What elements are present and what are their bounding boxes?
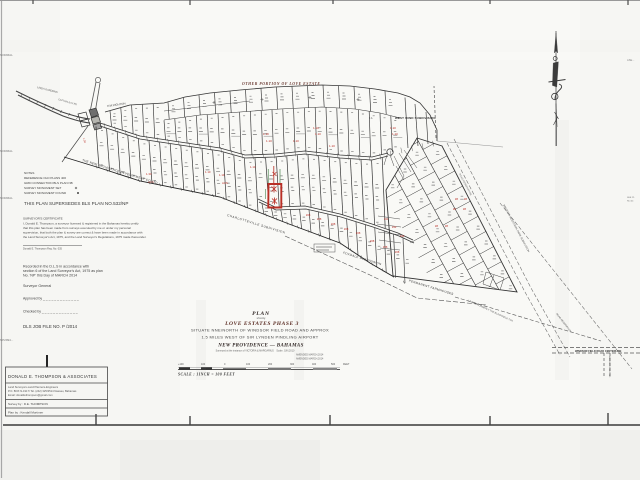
svg-text:Surveyed at the instance of VI: Surveyed at the instance of VICTORIA & M…	[216, 350, 295, 353]
svg-text:showing: showing	[257, 317, 266, 320]
svg-text:4 A: 4 A	[369, 117, 373, 120]
svg-text:1.10: 1.10	[266, 139, 272, 143]
svg-text:1.10: 1.10	[313, 126, 319, 130]
svg-text:OTHER PORTION OF LOVE ESTATE: OTHER PORTION OF LOVE ESTATE	[242, 82, 320, 86]
svg-text:LOVE ESTATES PHASE 3: LOVE ESTATES PHASE 3	[224, 321, 299, 327]
svg-text:1.10: 1.10	[205, 170, 211, 174]
svg-text:400: 400	[312, 363, 317, 366]
svg-text:200: 200	[268, 363, 273, 366]
svg-text:#43: #43	[400, 234, 405, 238]
svg-text:FEET: FEET	[343, 363, 350, 366]
svg-text:500: 500	[331, 363, 336, 366]
svg-text:1.10: 1.10	[263, 132, 269, 136]
svg-text:#28: #28	[306, 213, 311, 217]
svg-text:#41: #41	[384, 217, 389, 221]
svg-text:1.10: 1.10	[390, 126, 396, 130]
svg-text:1.10: 1.10	[293, 139, 299, 143]
svg-text:#28: #28	[356, 231, 361, 235]
svg-text:SCALE : 1INCH = 100 FEET: SCALE : 1INCH = 100 FEET	[178, 373, 235, 377]
svg-text:1.10: 1.10	[219, 173, 225, 177]
svg-text:1.30: 1.30	[146, 172, 152, 176]
svg-text:#28: #28	[395, 250, 400, 254]
svg-text:SITUATE NNE/NORTH OF WINDSOR F: SITUATE NNE/NORTH OF WINDSOR FIELD ROAD …	[191, 328, 329, 333]
svg-text:1.10: 1.10	[329, 144, 335, 148]
svg-text:1.10: 1.10	[315, 132, 321, 136]
svg-text:#28: #28	[370, 239, 375, 243]
svg-text:#28: #28	[344, 227, 349, 231]
svg-text:NEW PROVIDENCE — BAHAMAS: NEW PROVIDENCE — BAHAMAS	[217, 344, 303, 349]
svg-text:#28: #28	[317, 217, 322, 221]
svg-text:1.10: 1.10	[250, 165, 256, 169]
svg-text:#42: #42	[392, 225, 397, 229]
svg-text:1.10: 1.10	[392, 132, 398, 136]
svg-text:ACS: ACS	[222, 181, 228, 185]
svg-text:100: 100	[246, 363, 251, 366]
svg-text:#28: #28	[331, 222, 336, 226]
